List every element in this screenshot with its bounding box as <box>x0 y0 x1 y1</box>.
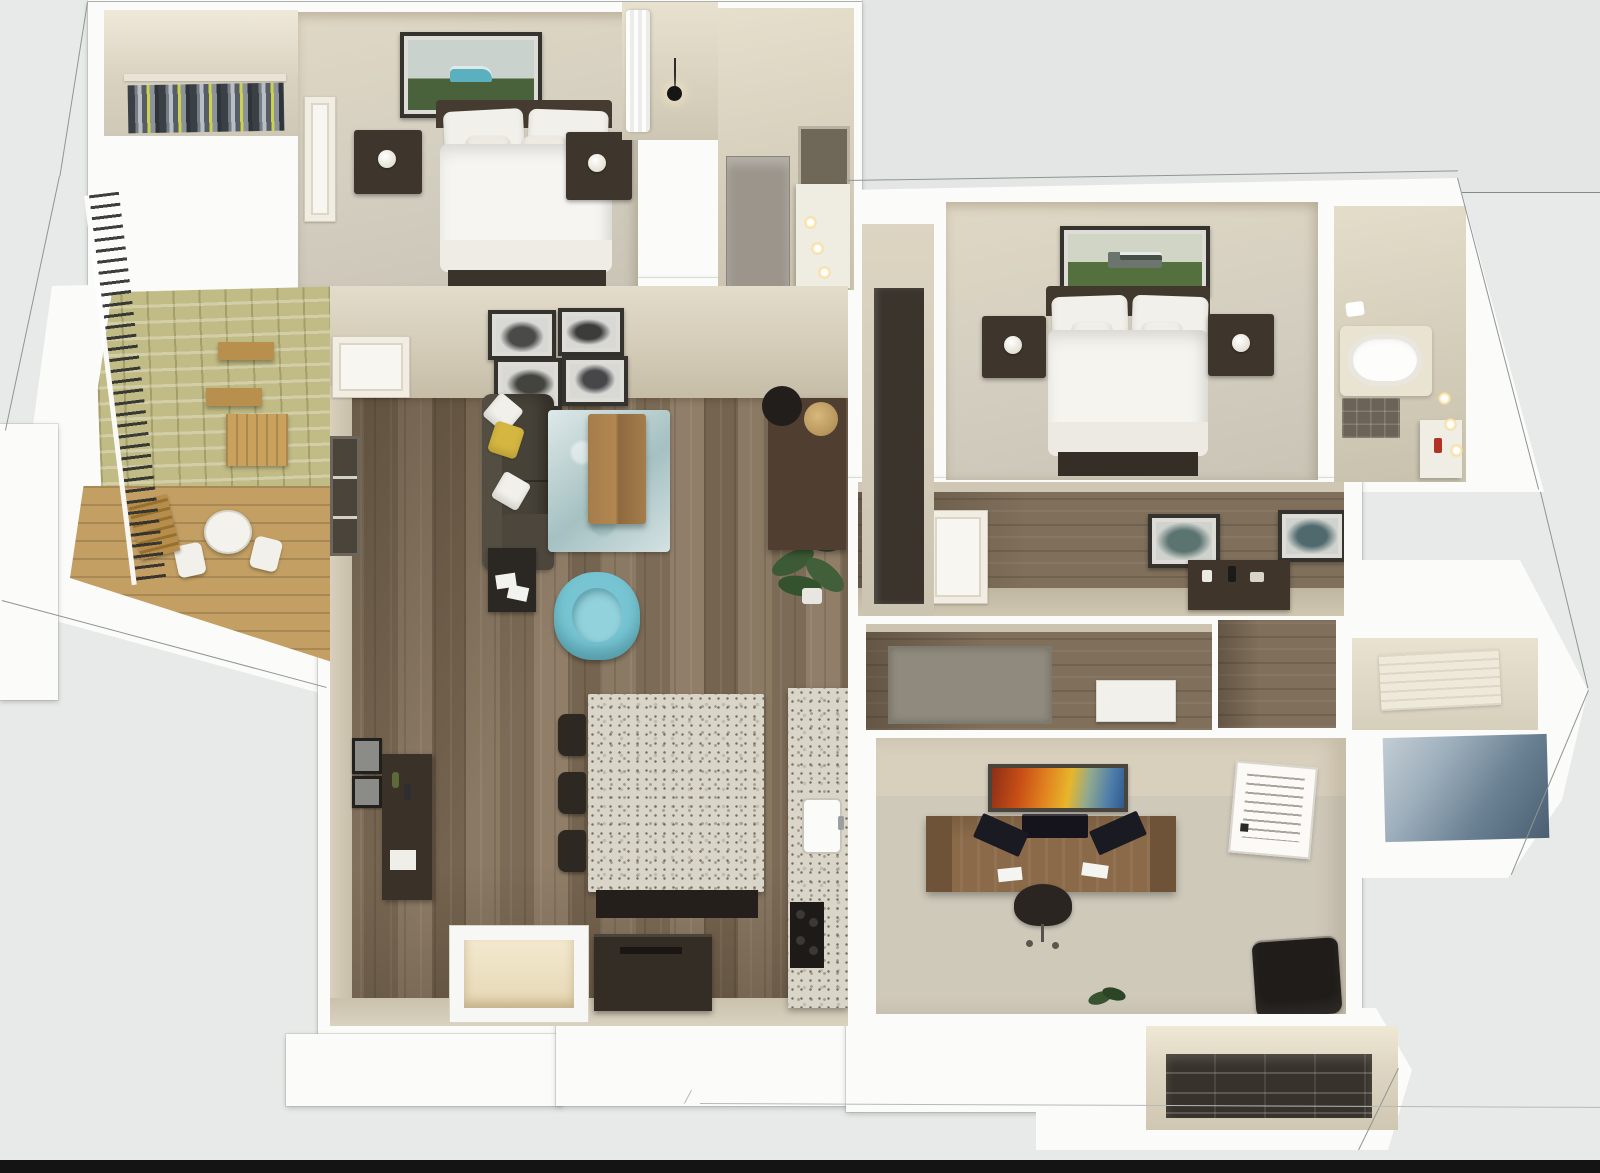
decor-box <box>390 850 416 870</box>
duvet-fold <box>440 240 612 272</box>
gallery-frame <box>488 310 556 360</box>
outline-top-left <box>88 1 862 2</box>
den-top-wall <box>866 624 1212 632</box>
tv-cabinet <box>594 934 712 1011</box>
bar-stool <box>558 714 586 756</box>
vanity-light <box>804 216 817 229</box>
gallery-photo <box>570 364 620 398</box>
outline-left-upper <box>59 2 88 176</box>
monitor-center <box>1022 814 1088 838</box>
decor-item <box>1250 572 1264 582</box>
wall-shelf <box>218 342 274 360</box>
sconce-light <box>1444 418 1457 431</box>
paper <box>997 867 1022 882</box>
pendant-light <box>667 86 682 101</box>
primary-bedroom <box>298 12 638 292</box>
bottle <box>404 784 411 800</box>
accent-armchair <box>554 572 640 660</box>
range <box>790 902 824 968</box>
gallery-frame <box>562 356 628 406</box>
nightstand <box>982 316 1046 378</box>
desk-pedestal <box>1150 816 1176 892</box>
small-wall-frame <box>352 738 382 774</box>
hall-photo <box>1156 522 1212 560</box>
vanity-light <box>811 242 824 255</box>
soundbar <box>620 947 682 954</box>
lounge-chair <box>1251 935 1342 1014</box>
abstract-artwork <box>988 764 1128 812</box>
shower-floor <box>1342 398 1400 438</box>
kitchen-island <box>588 694 764 892</box>
sconce-light <box>1450 444 1463 457</box>
window <box>330 436 360 556</box>
red-bottle <box>1434 438 1442 453</box>
bar-stool <box>558 772 586 814</box>
console-table <box>768 398 846 550</box>
den <box>866 624 1212 730</box>
table-lamp <box>588 154 606 172</box>
truck-artwork-picture <box>1068 234 1202 288</box>
kitchen-counter <box>788 688 848 1008</box>
paper <box>507 584 529 602</box>
table-lamp <box>1004 336 1022 354</box>
hall-door <box>928 510 988 604</box>
pendant-light-stem <box>674 58 676 88</box>
bottle <box>392 772 399 788</box>
nightstand <box>354 130 422 194</box>
backdrop-outline <box>858 0 1600 193</box>
ottoman <box>762 386 802 426</box>
right-closet <box>1352 638 1538 730</box>
hall-console <box>1188 560 1290 610</box>
table-lamp <box>378 150 396 168</box>
linen-closet <box>1146 1026 1398 1130</box>
hall-photo <box>1286 518 1338 554</box>
bedroom-door <box>304 96 336 222</box>
burner <box>809 918 818 927</box>
table-lamp <box>1232 334 1250 352</box>
bedroom-2 <box>946 202 1318 480</box>
towel <box>1345 301 1365 317</box>
chair-stem <box>1041 924 1044 942</box>
storage-crate <box>226 414 288 466</box>
rattan-lamp <box>804 402 838 436</box>
balcony-door <box>332 336 410 398</box>
gallery-photo <box>566 316 616 348</box>
faucet <box>838 816 844 830</box>
bar-stool <box>558 830 586 872</box>
living-bottom-wall <box>330 998 848 1026</box>
small-wall-frame <box>352 776 382 808</box>
task-chair <box>1014 884 1072 926</box>
plant-pot <box>802 588 822 604</box>
chair-caster <box>1026 940 1033 947</box>
armchair-seat <box>572 588 622 642</box>
burner <box>809 946 818 955</box>
inner-hall-nook <box>1218 620 1336 728</box>
primary-bath-shower <box>622 2 718 140</box>
office <box>876 738 1346 1014</box>
wall-mass-bottom-wing-b <box>556 1014 862 1106</box>
wall-mass-bottom-wing-a <box>286 1034 562 1106</box>
entry-alcove <box>450 926 588 1022</box>
exterior-shadow-wall <box>1383 734 1550 842</box>
truck-icon <box>1108 252 1162 268</box>
closet-shelf <box>124 74 286 81</box>
wall-mass-left-step <box>0 424 58 700</box>
primary-bathroom <box>718 8 854 290</box>
gallery-frame <box>558 308 624 356</box>
bathtub <box>1348 334 1422 386</box>
walk-in-closet <box>104 10 298 136</box>
hanging-clothes <box>128 83 285 134</box>
nightstand <box>566 132 632 200</box>
living-room <box>330 286 848 1026</box>
burner <box>796 910 805 919</box>
shower-curtain <box>626 10 650 132</box>
bistro-table <box>204 510 252 554</box>
vanity-mirror <box>798 126 850 188</box>
tub-surround <box>1340 326 1432 396</box>
side-table <box>488 548 536 612</box>
bathroom-2 <box>1334 206 1466 482</box>
letterbox-bar <box>0 1160 1600 1173</box>
tall-cabinet <box>874 288 924 604</box>
desk-pedestal <box>926 816 952 892</box>
coffee-table <box>588 414 646 524</box>
decor-item <box>1228 566 1236 582</box>
duvet-fold <box>1048 422 1208 456</box>
hall-frame <box>1278 510 1344 562</box>
media-cabinet <box>382 754 432 900</box>
quote-text-lines <box>1241 774 1304 843</box>
nightstand <box>1208 314 1274 376</box>
closet-shelving <box>1166 1054 1372 1118</box>
vanity-light <box>818 266 831 279</box>
bed-footboard <box>1058 452 1198 476</box>
decor-item <box>1202 570 1212 582</box>
den-mat <box>888 646 1052 724</box>
chair-caster <box>1052 942 1059 949</box>
hall-closet <box>862 224 934 616</box>
bed-duvet <box>1048 330 1208 456</box>
quote-frame <box>1228 761 1318 860</box>
sconce-light <box>1438 392 1451 405</box>
wall-shelf <box>206 388 262 406</box>
linen-cabinet <box>726 156 790 288</box>
office-plant <box>1088 986 1128 1014</box>
quote-logo-mark <box>1240 823 1249 832</box>
floorplan-render <box>0 0 1600 1173</box>
louvered-door <box>1379 649 1502 711</box>
gallery-photo <box>496 318 548 352</box>
burner <box>796 936 805 945</box>
kitchen-sink <box>802 798 842 854</box>
island-base <box>596 890 758 918</box>
den-cabinet <box>1096 680 1176 722</box>
van-icon <box>450 66 492 82</box>
